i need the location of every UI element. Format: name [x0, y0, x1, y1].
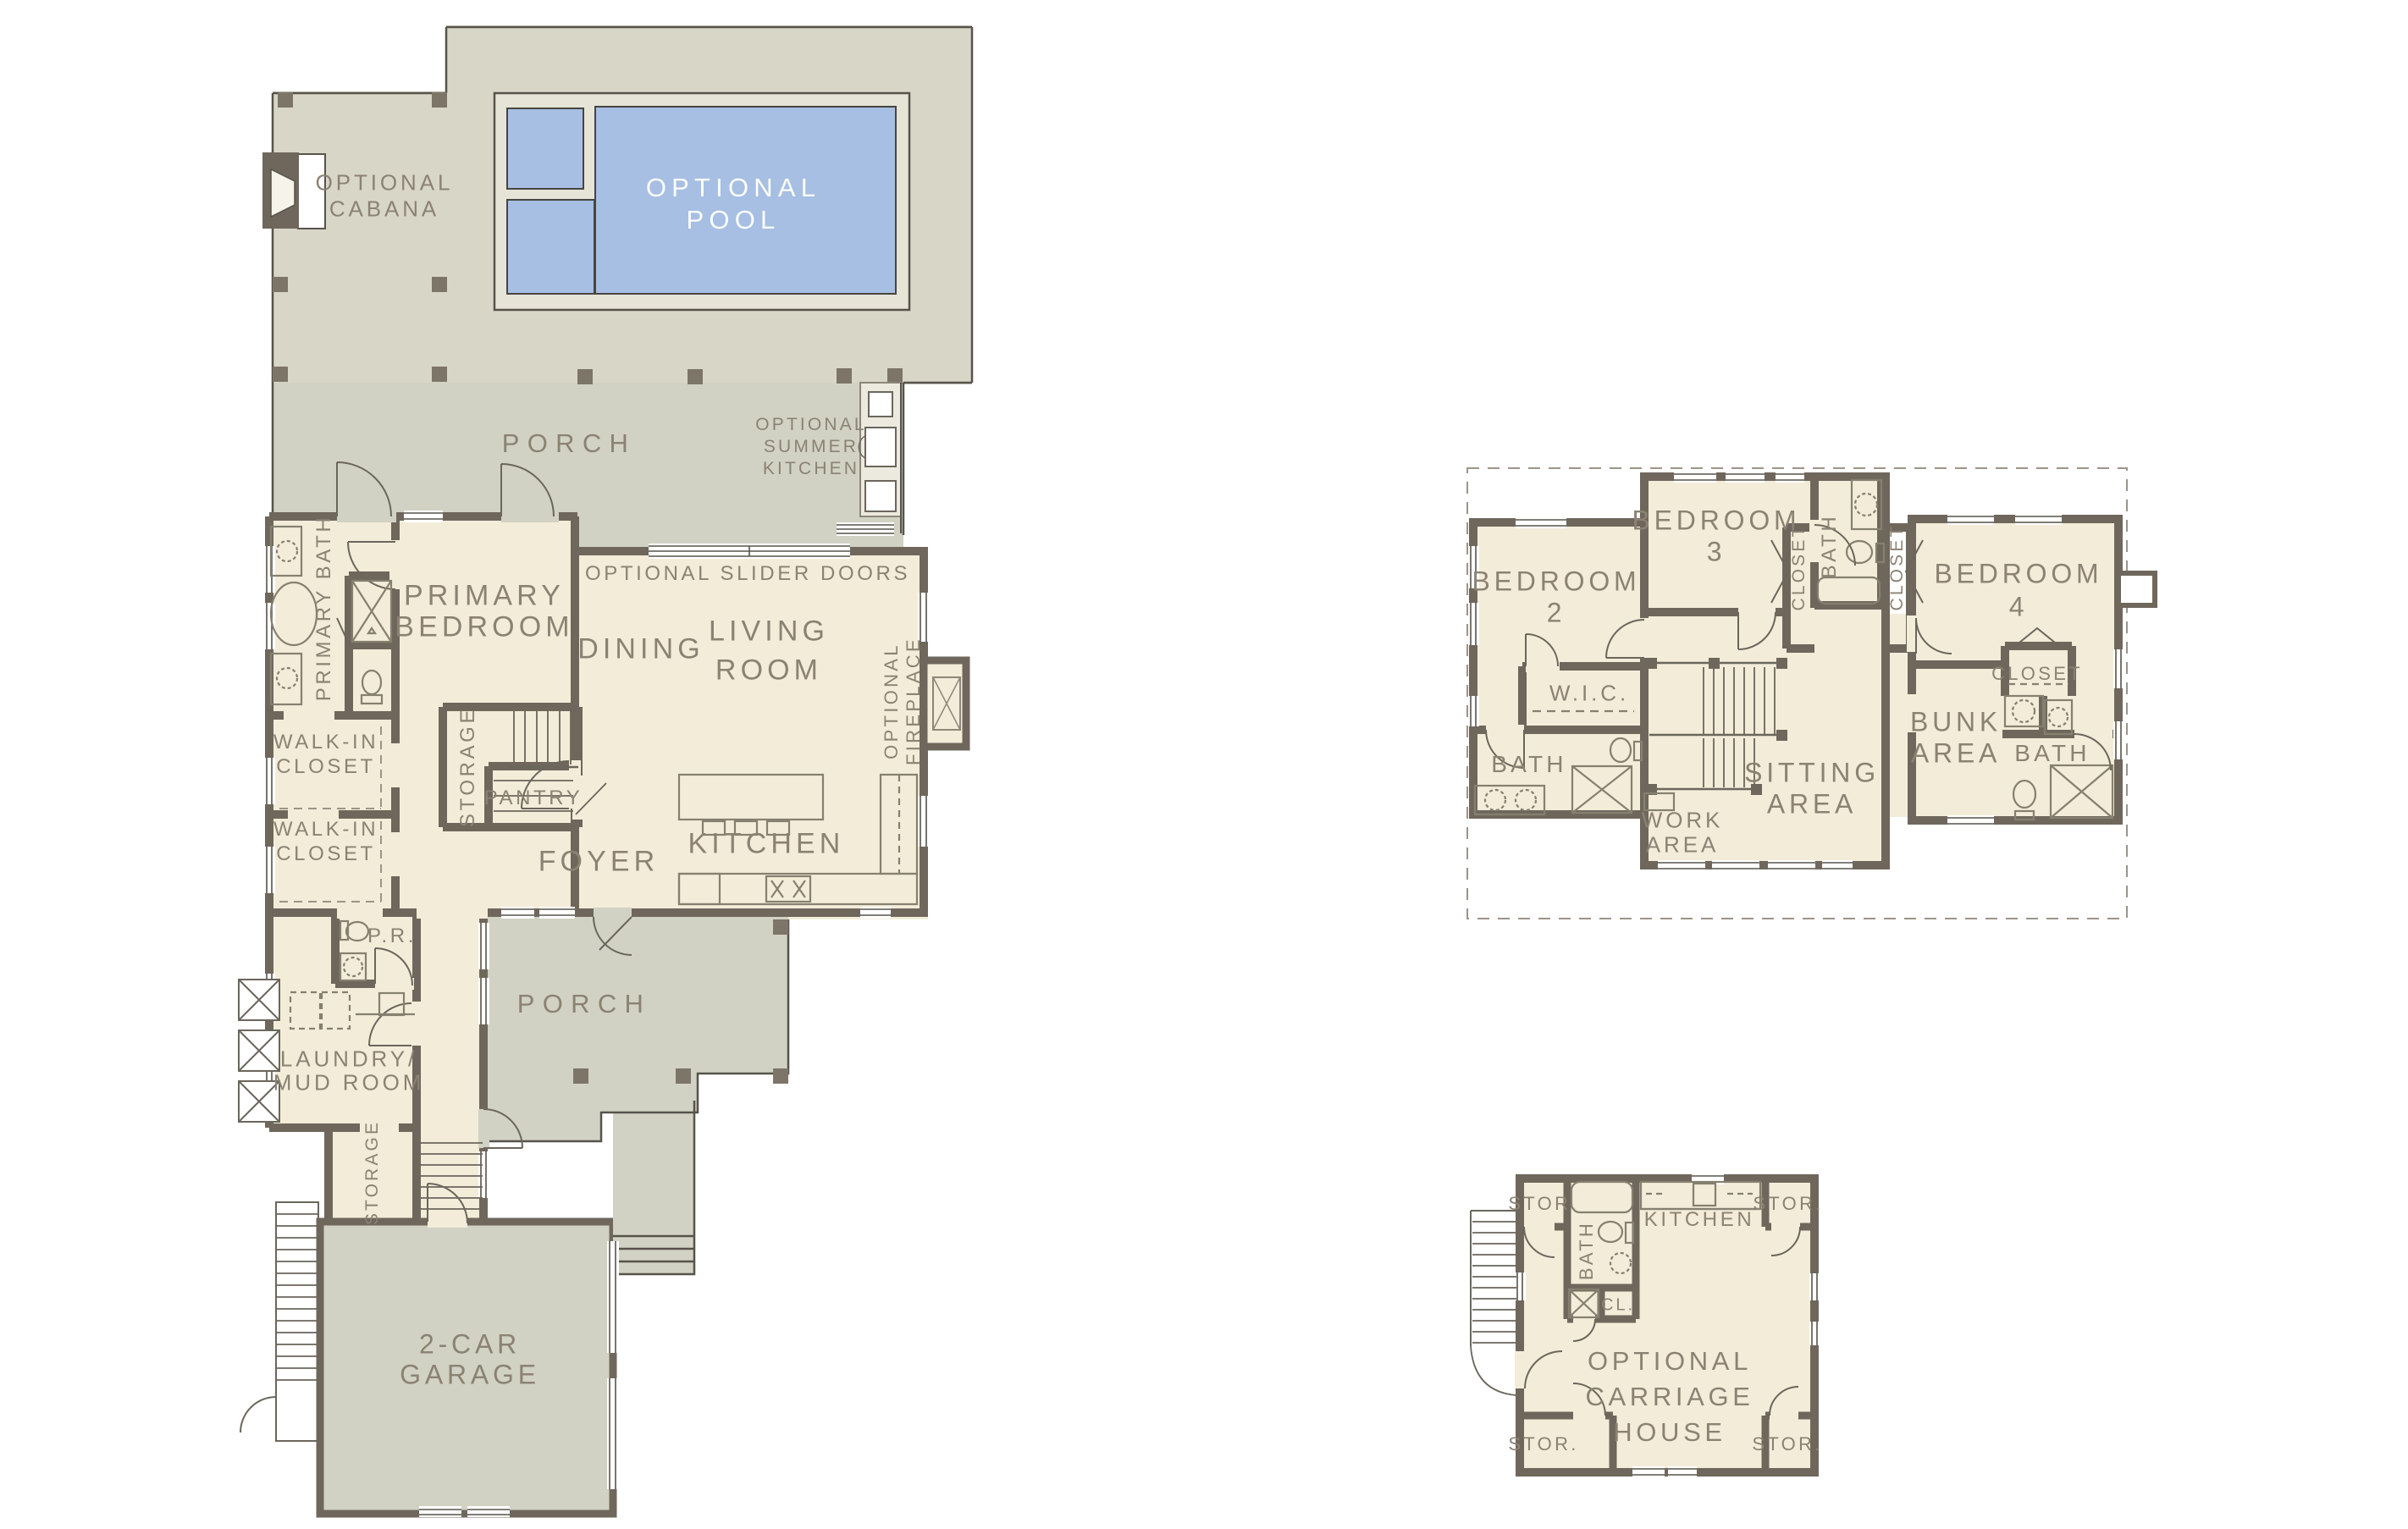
- label-living-1: LIVING: [709, 615, 829, 649]
- label-dining: DINING: [577, 633, 704, 666]
- label-garage-1: 2-CAR: [419, 1329, 521, 1361]
- label-bedroom3-2: 3: [1707, 537, 1726, 568]
- label-optional-cabana-1: OPTIONAL: [316, 170, 454, 196]
- label-closet-b4: CLOSET: [1991, 663, 2083, 685]
- fireplace: [924, 660, 966, 747]
- label-living-2: ROOM: [715, 654, 822, 687]
- hvac-units: [239, 980, 279, 1122]
- label-bath-top: BATH: [1818, 514, 1842, 579]
- label-porch-rear: PORCH: [517, 989, 651, 1019]
- label-bunk-2: AREA: [1911, 738, 2001, 770]
- label-summer-kitchen-2: SUMMER: [764, 437, 859, 457]
- label-laundry-2: MUD ROOM: [273, 1070, 425, 1096]
- label-stor-tl: STOR.: [1508, 1193, 1578, 1215]
- label-wic2-2: CLOSET: [276, 842, 376, 866]
- label-sitting-1: SITTING: [1744, 758, 1880, 789]
- label-bedroom3-1: BEDROOM: [1632, 505, 1801, 537]
- label-bedroom2-2: 2: [1547, 598, 1566, 629]
- label-primary-bedroom-2: BEDROOM: [395, 611, 573, 644]
- label-bedroom2-1: BEDROOM: [1472, 566, 1641, 598]
- label-optional-pool-1: OPTIONAL: [646, 173, 820, 203]
- label-bath-right: BATH: [2014, 740, 2090, 767]
- label-primary-bedroom-1: PRIMARY: [404, 580, 565, 613]
- label-bedroom4-1: BEDROOM: [1935, 559, 2103, 590]
- label-kitchen-carriage: KITCHEN: [1644, 1208, 1755, 1232]
- label-garage-2: GARAGE: [400, 1360, 540, 1391]
- label-sitting-2: AREA: [1767, 789, 1857, 820]
- label-summer-kitchen-3: KITCHEN: [763, 459, 859, 479]
- label-carriage-1: OPTIONAL: [1588, 1346, 1752, 1377]
- label-fireplace-1: OPTIONAL: [881, 643, 903, 759]
- label-storage-lower: STORAGE: [362, 1120, 383, 1225]
- label-foyer: FOYER: [538, 846, 660, 879]
- label-closet-left: CLOSET: [1789, 524, 1809, 611]
- label-bath-left: BATH: [1491, 751, 1566, 778]
- label-pantry: PANTRY: [484, 787, 583, 810]
- label-wic1-1: WALK-IN: [273, 731, 378, 754]
- label-stor-br: STOR.: [1752, 1433, 1822, 1455]
- label-optional-pool-2: POOL: [687, 205, 781, 235]
- label-optional-cabana-2: CABANA: [329, 196, 439, 223]
- label-wic2-1: WALK-IN: [273, 818, 378, 842]
- label-powder-room: P.R.: [367, 925, 417, 948]
- label-stor-bl: STOR.: [1508, 1433, 1578, 1455]
- floor-plan-canvas: OPTIONAL CABANA OPTIONAL POOL PORCH OPTI…: [0, 0, 2408, 1529]
- label-work-area-1: WORK: [1642, 808, 1723, 834]
- label-stor-tr: STOR.: [1753, 1193, 1823, 1215]
- label-cl: CL.: [1601, 1296, 1635, 1316]
- label-carriage-3: HOUSE: [1613, 1417, 1726, 1448]
- label-closet-right: CLOSET: [1887, 524, 1908, 611]
- label-primary-bath: PRIMARY BATH: [312, 515, 336, 702]
- label-slider-doors: OPTIONAL SLIDER DOORS: [585, 562, 910, 586]
- label-bedroom4-2: 4: [2009, 592, 2029, 623]
- label-fireplace-2: FIREPLACE: [903, 637, 925, 765]
- label-laundry-1: LAUNDRY/: [280, 1046, 417, 1073]
- label-wic-upper: W.I.C.: [1549, 681, 1629, 707]
- label-kitchen: KITCHEN: [688, 828, 845, 861]
- label-work-area-2: AREA: [1646, 832, 1719, 858]
- label-storage-hall: STORAGE: [456, 707, 480, 827]
- label-wic1-2: CLOSET: [276, 755, 376, 779]
- summer-kitchen-appliances: [859, 383, 901, 533]
- label-bunk-1: BUNK: [1910, 707, 2002, 738]
- label-carriage-2: CARRIAGE: [1585, 1382, 1754, 1412]
- label-summer-kitchen-1: OPTIONAL: [755, 415, 866, 435]
- label-porch-upper: PORCH: [502, 428, 636, 459]
- label-bath-carriage: BATH: [1576, 1221, 1598, 1280]
